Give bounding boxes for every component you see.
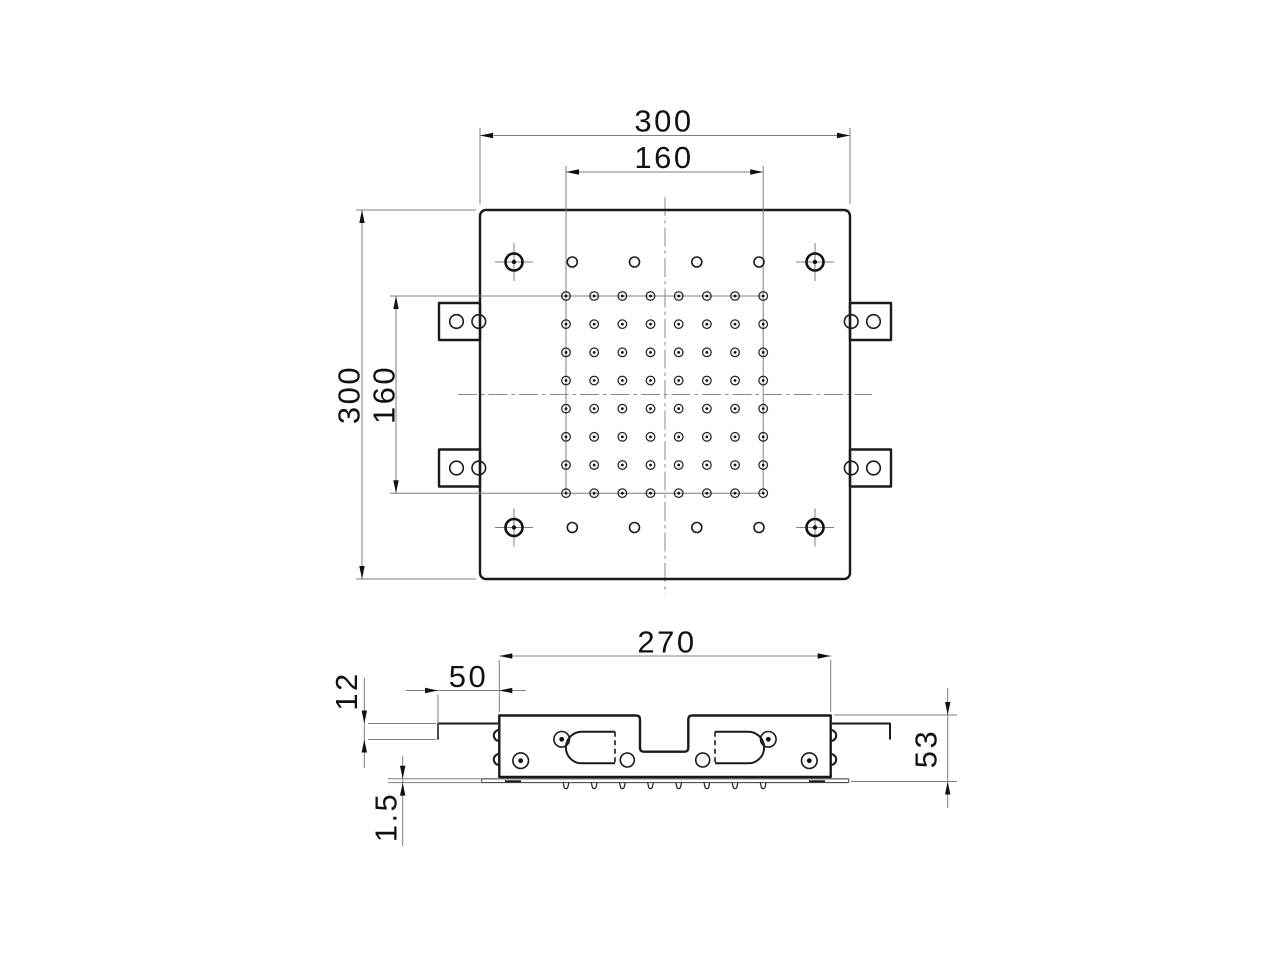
nozzle-teats (563, 783, 766, 789)
edge-hole (567, 523, 577, 533)
dim-overall-height: 53 (834, 688, 957, 808)
bracket-hole (867, 461, 881, 475)
dimension-arrowhead (400, 783, 405, 796)
nozzle-center-dot (677, 295, 680, 298)
nozzle-center-dot (677, 323, 680, 326)
nozzle-center-dot (565, 435, 568, 438)
right-obround-cutout (715, 732, 764, 764)
nozzle-center-dot (649, 379, 652, 382)
nozzle-center-dot (734, 295, 737, 298)
nozzle-center-dot (677, 407, 680, 410)
dim-label-300-width: 300 (634, 104, 693, 139)
nozzle-center-dot (621, 435, 624, 438)
edge-hole (692, 523, 702, 533)
nozzle-center-dot (593, 379, 596, 382)
nozzle-center-dot (705, 492, 708, 495)
edge-hole (692, 257, 702, 267)
nozzle-center-dot (593, 464, 596, 467)
dim-label-300-height: 300 (332, 365, 367, 424)
nozzle-center-dot (621, 323, 624, 326)
nozzle-teat (760, 783, 766, 789)
nozzle-center-dot (593, 435, 596, 438)
corner-hole-center-dot (512, 260, 516, 264)
dim-label-270: 270 (637, 625, 696, 660)
nozzle-center-dot (705, 351, 708, 354)
nozzle-center-dot (734, 323, 737, 326)
top-view: 300 160 300 160 (332, 104, 892, 595)
dimension-arrowhead (837, 133, 850, 138)
nozzle-center-dot (565, 379, 568, 382)
nozzle-center-dot (621, 407, 624, 410)
nozzle-teat (704, 783, 710, 789)
nozzle-center-dot (705, 295, 708, 298)
nozzle-center-dot (649, 351, 652, 354)
nozzle-center-dot (593, 492, 596, 495)
nozzle-center-dot (734, 351, 737, 354)
nozzle-center-dot (593, 351, 596, 354)
nozzle-center-dot (649, 464, 652, 467)
nozzle-center-dot (677, 492, 680, 495)
nozzle-center-dot (565, 492, 568, 495)
nozzle-center-dot (762, 351, 765, 354)
dimension-arrowhead (400, 766, 405, 779)
nozzle-center-dot (762, 295, 765, 298)
nozzle-center-dot (762, 323, 765, 326)
nozzle-center-dot (565, 295, 568, 298)
nozzle-center-dot (705, 379, 708, 382)
left-hanger-arm (438, 724, 498, 740)
dim-label-12: 12 (329, 671, 364, 710)
edge-hole (754, 257, 764, 267)
dimension-arrowhead (425, 688, 438, 693)
screw-hole-center-dot (766, 737, 771, 742)
nozzle-center-dot (565, 464, 568, 467)
side-bracket (439, 303, 480, 340)
nozzle-center-dot (621, 492, 624, 495)
dimension-arrowhead (818, 653, 831, 658)
nozzle-center-dot (621, 464, 624, 467)
bracket-hole (450, 315, 464, 329)
nozzle-center-dot (565, 407, 568, 410)
housing-holes (513, 732, 817, 769)
nozzle-center-dot (621, 351, 624, 354)
dimension-arrowhead (499, 688, 512, 693)
corner-hole-center-dot (813, 525, 817, 529)
dimension-arrowhead (945, 782, 950, 795)
dimension-arrowhead (362, 740, 367, 753)
dim-label-160-height: 160 (367, 365, 402, 424)
nozzle-center-dot (677, 435, 680, 438)
dim-arm-length: 50 (406, 659, 526, 739)
nozzle-center-dot (593, 323, 596, 326)
side-bracket (850, 303, 891, 340)
wall-clips (494, 730, 836, 765)
dimension-arrowhead (499, 653, 512, 658)
dimension-arrowhead (750, 169, 763, 174)
dimension-arrowhead (393, 480, 398, 493)
nozzle-teat (732, 783, 738, 789)
nozzle-center-dot (734, 492, 737, 495)
dim-left-height: 300 (332, 210, 477, 579)
dimension-arrowhead (359, 566, 364, 579)
screw-hole-center-dot (518, 758, 523, 763)
nozzle-center-dot (762, 379, 765, 382)
nozzle-center-dot (677, 464, 680, 467)
nozzle-center-dot (762, 492, 765, 495)
nozzle-center-dot (762, 407, 765, 410)
edge-hole (754, 523, 764, 533)
edge-hole (630, 523, 640, 533)
dimension-arrowhead (945, 702, 950, 715)
nozzle-center-dot (565, 351, 568, 354)
nozzle-teat (676, 783, 682, 789)
dim-nozzle-field-width: 160 (566, 140, 763, 175)
nozzle-center-dot (621, 379, 624, 382)
dim-nozzle-field-height: 160 (367, 296, 402, 493)
nozzle-teat (591, 783, 597, 789)
side-bracket (850, 450, 891, 487)
nozzle-center-dot (649, 492, 652, 495)
corner-hole-center-dot (512, 525, 516, 529)
bracket-hole (867, 315, 881, 329)
nozzle-center-dot (677, 379, 680, 382)
nozzle-center-dot (677, 351, 680, 354)
face-plate (482, 779, 849, 783)
nozzle-center-dot (705, 407, 708, 410)
side-view: 270 50 12 1.5 53 (329, 625, 957, 847)
dim-arm-drop: 12 (329, 671, 436, 768)
side-bracket (439, 450, 480, 487)
nozzle-center-dot (762, 464, 765, 467)
nozzle-center-dot (734, 407, 737, 410)
plain-hole (696, 753, 710, 767)
edge-hole (630, 257, 640, 267)
nozzle-teat (648, 783, 654, 789)
corner-hole-center-dot (813, 260, 817, 264)
nozzle-center-dot (734, 464, 737, 467)
nozzle-center-dot (649, 295, 652, 298)
nozzle-center-dot (621, 295, 624, 298)
dim-label-50: 50 (449, 659, 488, 694)
nozzle-center-dot (705, 435, 708, 438)
technical-drawing: 300 160 300 160 (0, 0, 1280, 960)
nozzle-center-dot (593, 407, 596, 410)
nozzle-teat (620, 783, 626, 789)
right-hanger-arm (832, 724, 890, 740)
nozzle-teat (563, 783, 569, 789)
nozzle-center-dot (734, 435, 737, 438)
nozzle-center-dot (593, 295, 596, 298)
edge-hole (567, 257, 577, 267)
dim-plate-thickness: 1.5 (369, 756, 482, 846)
nozzle-center-dot (565, 323, 568, 326)
nozzle-center-dot (649, 435, 652, 438)
nozzle-center-dot (649, 407, 652, 410)
dimension-arrowhead (393, 296, 398, 309)
dim-housing-width: 270 (499, 625, 830, 713)
dimension-arrowhead (480, 133, 493, 138)
dim-label-160-width: 160 (634, 140, 693, 175)
dim-label-53: 53 (909, 729, 944, 768)
screw-hole-center-dot (807, 758, 812, 763)
nozzle-center-dot (762, 435, 765, 438)
housing-outline (499, 716, 830, 778)
nozzle-center-dot (705, 323, 708, 326)
nozzle-center-dot (734, 379, 737, 382)
bracket-hole (450, 461, 464, 475)
dimension-arrowhead (359, 210, 364, 223)
plain-hole (620, 753, 634, 767)
left-obround-cutout (566, 732, 615, 764)
dim-label-1-5: 1.5 (369, 792, 404, 843)
dimension-arrowhead (362, 711, 367, 724)
drawing-canvas: 300 160 300 160 (0, 0, 1280, 960)
screw-hole-center-dot (559, 737, 564, 742)
nozzle-center-dot (705, 464, 708, 467)
dimension-arrowhead (566, 169, 579, 174)
nozzle-center-dot (649, 323, 652, 326)
